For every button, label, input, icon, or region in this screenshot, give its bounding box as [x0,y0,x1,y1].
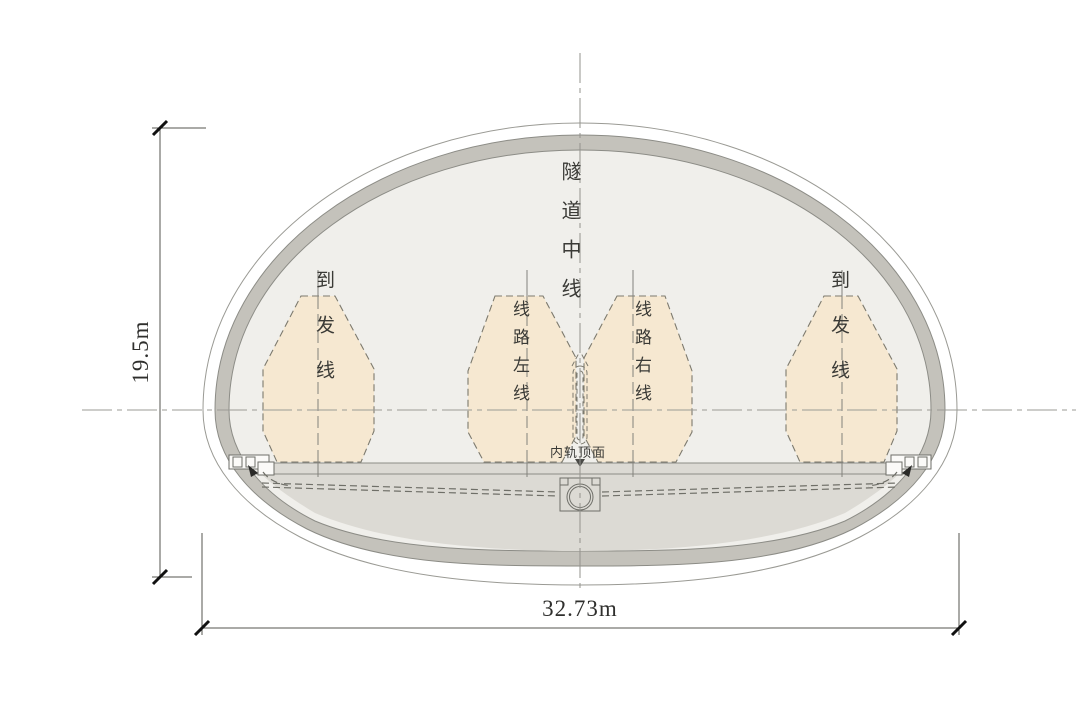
label-siding-right: 到发线 [825,270,852,405]
tunnel-cross-section-drawing: 隧道中线 到发线 线路左线 线路右线 到发线 内轨顶面 19.5m 32.73m [0,0,1085,711]
label-track-right: 线路右线 [629,300,654,412]
dimension-height-value: 19.5m [128,297,156,407]
label-track-left: 线路左线 [507,300,532,412]
dimension-width-value: 32.73m [520,596,640,622]
label-tunnel-centerline: 隧道中线 [555,161,584,317]
label-rail-top-surface: 内轨顶面 [545,442,611,461]
dimension-height [152,121,206,584]
label-siding-left: 到发线 [310,270,337,405]
